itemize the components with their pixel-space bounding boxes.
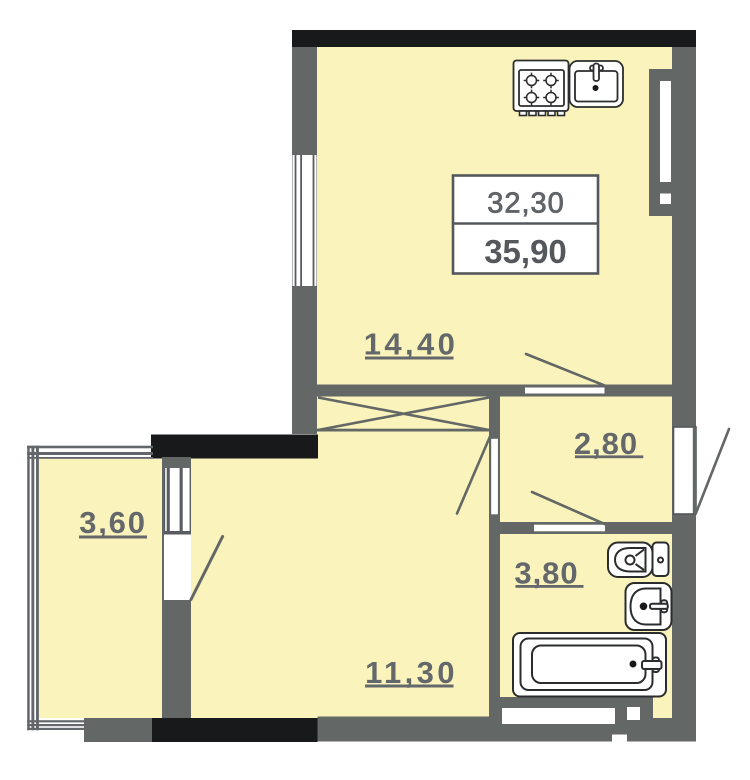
svg-text:14,40: 14,40 [364,327,459,362]
svg-text:3,60: 3,60 [79,505,147,540]
svg-text:32,30: 32,30 [487,188,565,220]
svg-text:35,90: 35,90 [484,233,567,270]
